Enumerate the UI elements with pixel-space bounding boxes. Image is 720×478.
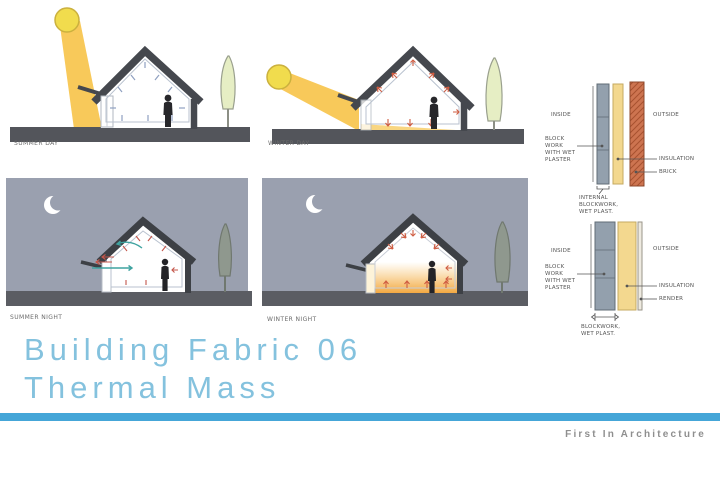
caption-summer-day: SUMMER DAY (14, 140, 58, 147)
window (366, 264, 375, 293)
caption-winter-day: WINTER DAY (268, 140, 310, 147)
accent-bar (0, 413, 720, 421)
sunbeam (60, 21, 102, 129)
sun-icon (267, 65, 291, 89)
sun-icon (55, 8, 79, 32)
insulation-label: INSULATION (659, 283, 694, 290)
wall-detail-brick: INSIDE BLOCK WORK WITH WET PLASTER OUTSI… (545, 62, 717, 212)
slide-canvas: SUMMER DAY (0, 0, 720, 478)
house-interior (361, 57, 464, 130)
ground (6, 291, 252, 306)
diagram-winter-day (258, 0, 534, 156)
inside-label: INSIDE (551, 248, 571, 255)
caption-winter-night: WINTER NIGHT (267, 316, 317, 323)
brick-label: BRICK (659, 169, 677, 176)
title-line-2: Thermal Mass (24, 369, 362, 407)
inside-label: INSIDE (551, 112, 571, 119)
blockwork-layer (597, 84, 609, 184)
insulation-layer (613, 84, 623, 184)
diagram-summer-day (0, 0, 258, 156)
diagram-winter-night (262, 178, 528, 312)
outside-label: OUTSIDE (653, 112, 679, 119)
wall-detail-render: INSIDE BLOCK WORK WITH WET PLASTER OUTSI… (545, 212, 717, 347)
render-label: RENDER (659, 296, 683, 303)
blockwork-label: BLOCK WORK WITH WET PLASTER (545, 264, 577, 292)
detail-footnote: BLOCKWORK, WET PLAST. (581, 324, 627, 338)
tree (495, 222, 510, 293)
render-layer (638, 222, 642, 310)
brick-layer (630, 82, 644, 186)
blockwork-layer (595, 222, 615, 310)
tree (221, 56, 235, 127)
title-line-1: Building Fabric 06 (24, 331, 362, 369)
outside-label: OUTSIDE (653, 246, 679, 253)
brand-text: First In Architecture (565, 429, 706, 440)
moon-shadow (50, 195, 66, 211)
diagram-summer-night (6, 178, 252, 312)
moon-shadow (312, 194, 328, 210)
caption-summer-night: SUMMER NIGHT (10, 314, 62, 321)
leader-lines (577, 273, 657, 321)
ground (262, 291, 528, 306)
dimension-arrow (592, 313, 619, 321)
insulation-label: INSULATION (659, 156, 694, 163)
ground (272, 129, 524, 144)
window (102, 262, 111, 292)
blockwork-label: BLOCK WORK WITH WET PLASTER (545, 136, 577, 164)
slide-title: Building Fabric 06 Thermal Mass (24, 331, 362, 407)
tree (486, 58, 502, 130)
insulation-layer (618, 222, 636, 310)
